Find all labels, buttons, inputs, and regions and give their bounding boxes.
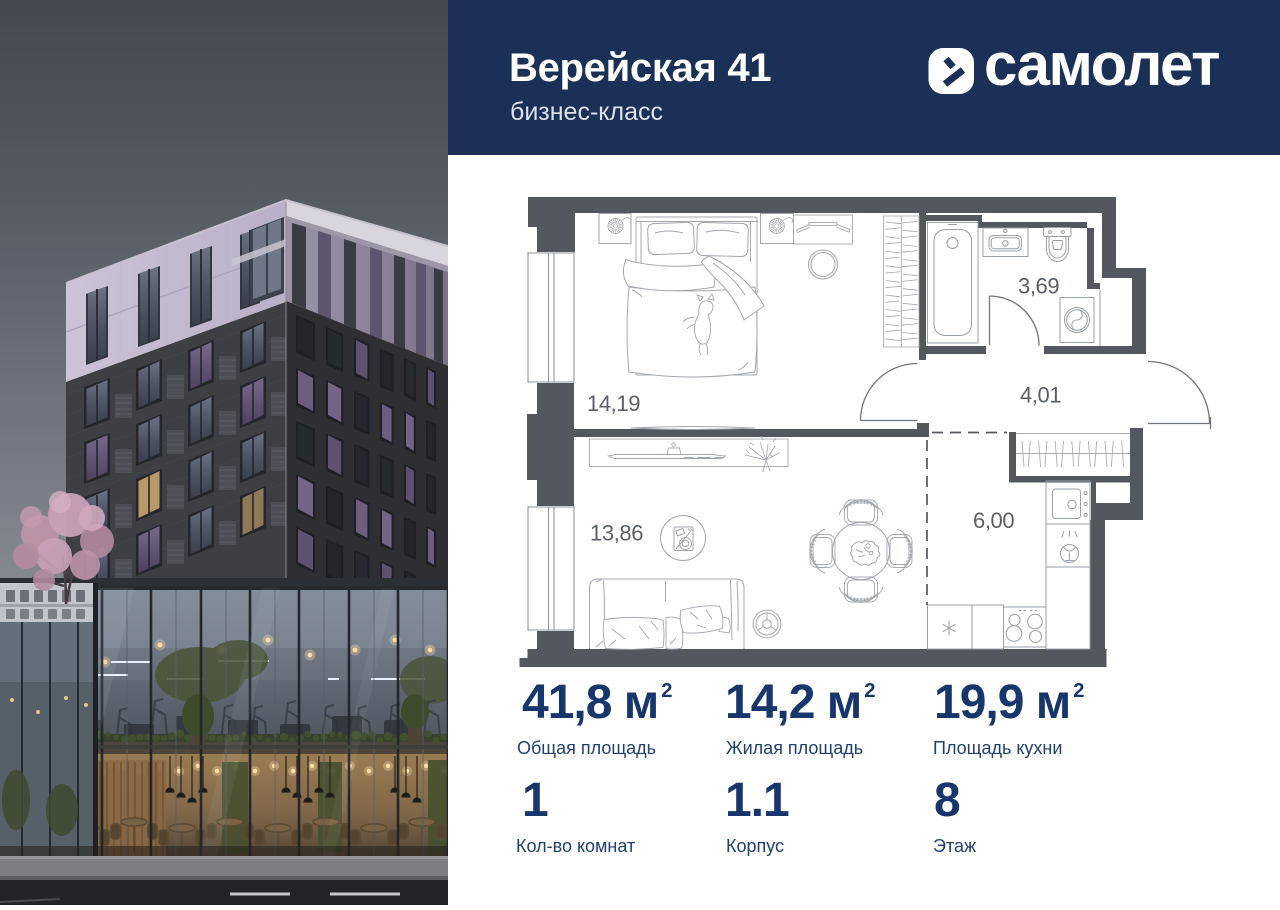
- svg-text:4,01: 4,01: [1020, 383, 1061, 408]
- svg-text:3,69: 3,69: [1018, 274, 1059, 299]
- svg-text:14,19: 14,19: [587, 391, 640, 416]
- svg-text:6,00: 6,00: [973, 508, 1014, 533]
- svg-text:13,86: 13,86: [590, 521, 643, 546]
